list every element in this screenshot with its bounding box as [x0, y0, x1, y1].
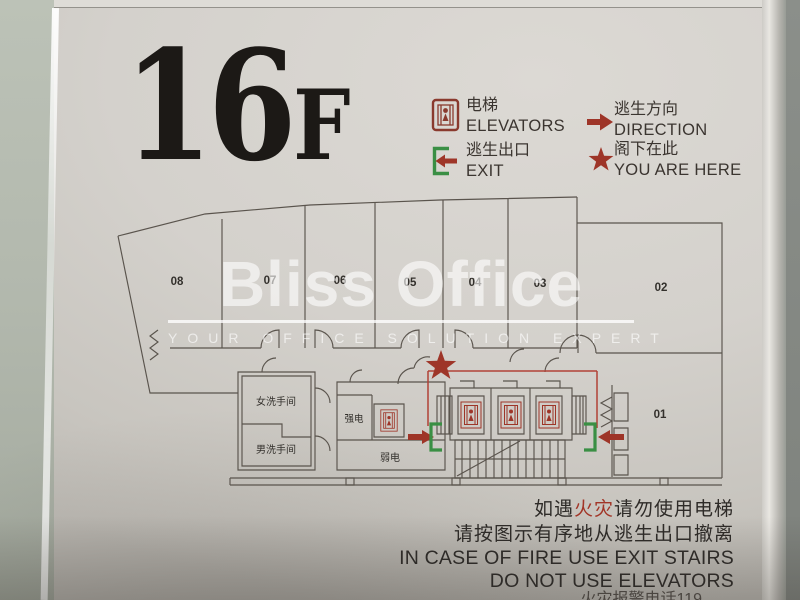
room-03: 03: [534, 278, 547, 290]
plan-walls: [118, 197, 722, 485]
room-05: 05: [404, 277, 417, 289]
plan-elevator-icon: [539, 402, 559, 428]
room-04: 04: [469, 277, 482, 289]
warning-zh-line2: 请按图示有序地从逃生出口撤离: [399, 522, 734, 547]
fire-phone-cutoff: 火灾报警电话119: [580, 591, 702, 600]
sign-photo: 16 F 电梯 ELEVATORS 逃生出口 EXIT 逃生方向 DIRECTI…: [0, 0, 800, 600]
room-01: 01: [654, 409, 667, 421]
room-02: 02: [655, 282, 668, 294]
you-are-here-star: [426, 350, 456, 379]
warning-en-line1: IN CASE OF FIRE USE EXIT STAIRS: [399, 547, 734, 570]
label-strong-power: 强电: [344, 413, 364, 425]
label-women-restroom: 女洗手间: [256, 395, 296, 408]
fire-warnings: 如遇火灾请勿使用电梯 请按图示有序地从逃生出口撤离 IN CASE OF FIR…: [399, 497, 734, 593]
plan-service-elevator-icon: [381, 410, 397, 431]
plan-elevator-icon: [501, 402, 521, 428]
room-07: 07: [264, 275, 277, 287]
room-06: 06: [334, 275, 347, 287]
warning-zh-line1: 如遇火灾请勿使用电梯: [399, 497, 734, 522]
plan-elevator-icon: [461, 402, 481, 428]
evacuation-path: [408, 350, 624, 450]
warning-en-line2: DO NOT USE ELEVATORS: [399, 570, 734, 593]
room-08: 08: [171, 276, 184, 288]
label-men-restroom: 男洗手间: [256, 443, 296, 456]
exit-arrow-right: [598, 430, 624, 444]
label-weak-power: 弱电: [380, 451, 400, 464]
fire-word: 火灾: [574, 499, 614, 520]
